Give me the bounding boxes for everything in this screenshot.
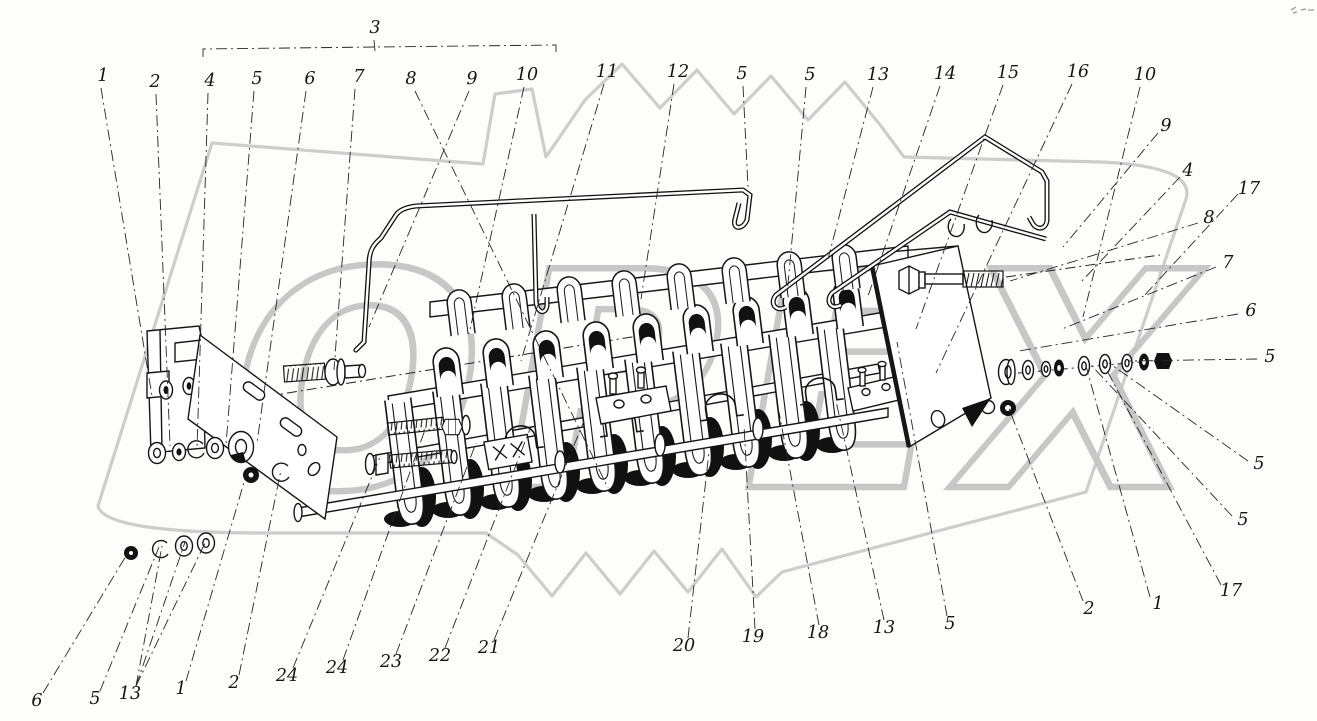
callout-label-14: 14 <box>934 64 956 84</box>
callout-label-12: 12 <box>667 62 689 82</box>
callout-label-10: 10 <box>1134 65 1156 85</box>
callout-label-5: 5 <box>1237 510 1248 530</box>
callout-label-5: 5 <box>1264 347 1275 367</box>
callout-label-20: 20 <box>672 636 695 656</box>
callout-label-9: 9 <box>466 69 477 89</box>
callout-label-1: 1 <box>1152 594 1163 614</box>
callout-label-5: 5 <box>1253 454 1264 474</box>
callout-label-7: 7 <box>1222 253 1234 273</box>
callout-label-15: 15 <box>997 63 1019 83</box>
callout-label-17: 17 <box>1220 581 1243 601</box>
callout-label-5: 5 <box>251 69 262 89</box>
callout-label-5: 5 <box>804 65 815 85</box>
callout-label-17: 17 <box>1238 179 1261 199</box>
figure-canvas: ОРЕХ <box>0 0 1317 721</box>
callout-label-3: 3 <box>369 18 380 38</box>
callout-label-21: 21 <box>477 638 500 658</box>
leader-line <box>374 40 375 51</box>
callout-label-4: 4 <box>1181 161 1193 181</box>
callout-label-24: 24 <box>275 666 298 686</box>
leader-line <box>101 88 152 396</box>
leader-line <box>136 539 207 686</box>
callout-label-16: 16 <box>1067 62 1089 82</box>
callout-label-10: 10 <box>516 65 538 85</box>
callout-label-13: 13 <box>867 65 889 85</box>
parts-diagram-page: ОРЕХ <box>0 0 1317 721</box>
callout-label-2: 2 <box>227 673 239 693</box>
callout-label-5: 5 <box>89 689 100 709</box>
index-bracket <box>203 45 556 57</box>
callout-label-4: 4 <box>203 71 215 91</box>
callout-label-5: 5 <box>944 614 955 634</box>
callout-label-22: 22 <box>428 646 451 666</box>
callout-label-1: 1 <box>175 679 186 699</box>
callout-label-7: 7 <box>353 67 365 87</box>
callout-label-13: 13 <box>873 618 895 638</box>
callout-label-9: 9 <box>1160 116 1171 136</box>
callout-label-2: 2 <box>1082 599 1094 619</box>
callout-label-8: 8 <box>405 69 416 89</box>
callout-label-18: 18 <box>807 623 829 643</box>
callout-label-5: 5 <box>736 64 747 84</box>
callout-label-2: 2 <box>148 72 160 92</box>
leader-line <box>43 551 129 693</box>
callout-label-6: 6 <box>304 69 315 89</box>
corner-mark <box>1291 7 1314 13</box>
callout-label-23: 23 <box>379 652 402 672</box>
callout-label-8: 8 <box>1203 208 1214 228</box>
callout-label-6: 6 <box>31 691 42 711</box>
callout-label-6: 6 <box>1245 301 1256 321</box>
leader-line <box>136 546 162 686</box>
callout-label-13: 13 <box>119 684 141 704</box>
callout-label-11: 11 <box>596 62 618 82</box>
callout-label-24: 24 <box>325 658 348 678</box>
leader-line <box>100 547 159 691</box>
callout-label-19: 19 <box>742 627 764 647</box>
leader-line <box>136 542 185 686</box>
watermark: ОРЕХ <box>98 64 1242 597</box>
callout-label-1: 1 <box>97 66 108 86</box>
